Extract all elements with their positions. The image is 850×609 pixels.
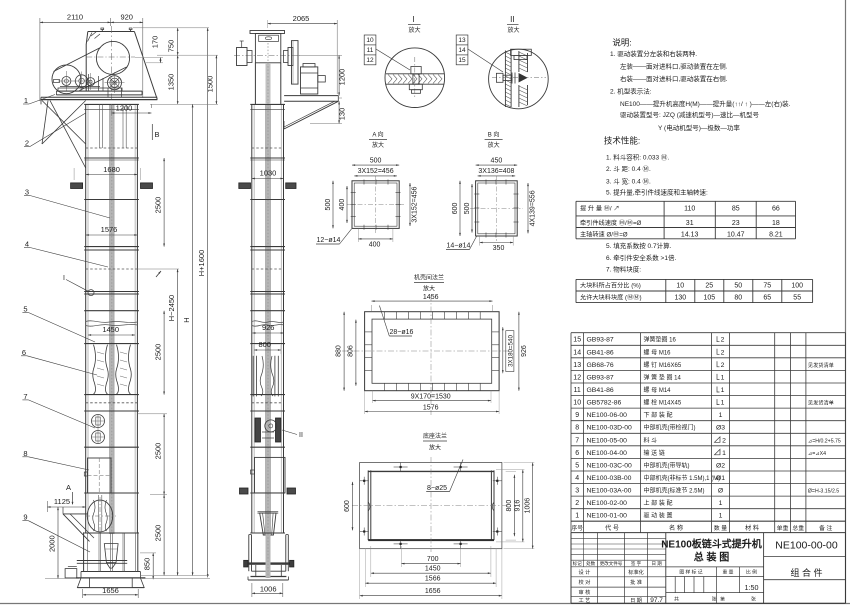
svg-text:1656: 1656 bbox=[102, 586, 119, 595]
svg-text:机壳间法兰: 机壳间法兰 bbox=[414, 274, 444, 282]
svg-text:重 量: 重 量 bbox=[723, 568, 734, 575]
svg-text:共: 共 bbox=[674, 595, 679, 602]
svg-text:校 对: 校 对 bbox=[578, 578, 590, 586]
svg-text:放大: 放大 bbox=[408, 26, 420, 34]
svg-text:1566: 1566 bbox=[425, 576, 441, 583]
svg-text:代 号: 代 号 bbox=[605, 524, 619, 532]
svg-text:1500: 1500 bbox=[206, 76, 215, 93]
svg-text:10: 10 bbox=[676, 283, 684, 290]
svg-text:3. 斗 宽: 0.4 Ⓜ.: 3. 斗 宽: 0.4 Ⓜ. bbox=[606, 177, 651, 186]
svg-text:H−2450: H−2450 bbox=[167, 295, 176, 321]
svg-text:NE100-03B-00: NE100-03B-00 bbox=[587, 475, 632, 482]
svg-text:NE100-03A-00: NE100-03A-00 bbox=[587, 488, 632, 495]
svg-text:驱 动 装 置: 驱 动 装 置 bbox=[644, 512, 673, 520]
svg-text:提 升 量 Ⓜ/ ↗: 提 升 量 Ⓜ/ ↗ bbox=[580, 204, 620, 212]
svg-text:⊿=⊿X4: ⊿=⊿X4 bbox=[808, 451, 826, 457]
svg-text:2: 2 bbox=[721, 349, 725, 356]
svg-text:2500: 2500 bbox=[153, 443, 162, 460]
svg-text:6: 6 bbox=[22, 348, 26, 357]
svg-text:序号: 序号 bbox=[571, 524, 583, 532]
svg-text:25: 25 bbox=[705, 283, 713, 290]
svg-text:Ø1: Ø1 bbox=[716, 475, 725, 482]
svg-text:3X180=540: 3X180=540 bbox=[507, 335, 514, 367]
svg-text:NE100板链斗式提升机: NE100板链斗式提升机 bbox=[661, 538, 762, 551]
svg-text:2500: 2500 bbox=[153, 344, 162, 361]
svg-text:9: 9 bbox=[23, 513, 27, 522]
svg-text:1. 驱动装置分左装和右装两种.: 1. 驱动装置分左装和右装两种. bbox=[610, 49, 697, 58]
svg-text:NE100-02-00: NE100-02-00 bbox=[587, 500, 628, 507]
svg-text:1: 1 bbox=[721, 387, 725, 394]
svg-text:标记: 标记 bbox=[573, 560, 582, 567]
svg-text:技术性能:: 技术性能: bbox=[604, 136, 640, 146]
svg-text:⊿=H/0.2+5.75: ⊿=H/0.2+5.75 bbox=[808, 438, 841, 444]
svg-text:2: 2 bbox=[25, 139, 29, 148]
svg-text:2065: 2065 bbox=[293, 14, 310, 23]
svg-text:4: 4 bbox=[25, 240, 29, 249]
svg-text:3X152=456: 3X152=456 bbox=[412, 186, 419, 222]
svg-text:4X139=556: 4X139=556 bbox=[530, 190, 537, 226]
svg-text:1450: 1450 bbox=[102, 325, 119, 334]
svg-text:名 称: 名 称 bbox=[669, 524, 683, 532]
svg-text:916: 916 bbox=[515, 500, 522, 512]
svg-text:400: 400 bbox=[339, 199, 346, 211]
svg-text:1: 1 bbox=[719, 500, 723, 507]
svg-text:9: 9 bbox=[575, 412, 579, 419]
svg-text:图 样 标 记: 图 样 标 记 bbox=[679, 568, 702, 575]
svg-text:处数: 处数 bbox=[586, 560, 595, 567]
svg-text:100: 100 bbox=[791, 283, 803, 290]
svg-text:10.47: 10.47 bbox=[727, 232, 745, 239]
svg-text:5. 填充系数按 0.7计算.: 5. 填充系数按 0.7计算. bbox=[606, 241, 672, 250]
svg-text:GB41-86: GB41-86 bbox=[587, 387, 614, 394]
svg-text:4: 4 bbox=[575, 475, 579, 482]
svg-text:中部机壳(带检视门): 中部机壳(带检视门) bbox=[644, 424, 696, 432]
svg-text:130: 130 bbox=[338, 108, 347, 121]
svg-text:日 期: 日 期 bbox=[630, 597, 642, 604]
svg-text:放大: 放大 bbox=[507, 26, 519, 34]
svg-text:螺 母 M14: 螺 母 M14 bbox=[644, 386, 672, 394]
svg-text:1006: 1006 bbox=[525, 498, 532, 514]
svg-text:螺 钉 M16X65: 螺 钉 M16X65 bbox=[644, 361, 682, 369]
svg-text:6: 6 bbox=[575, 450, 579, 457]
svg-text:输 送 链: 输 送 链 bbox=[644, 449, 665, 457]
svg-text:1: 1 bbox=[722, 450, 726, 457]
svg-text:500: 500 bbox=[370, 157, 382, 164]
svg-text:比 例: 比 例 bbox=[746, 568, 757, 575]
svg-text:850: 850 bbox=[143, 558, 152, 571]
svg-text:600: 600 bbox=[344, 500, 351, 512]
svg-text:600: 600 bbox=[452, 202, 459, 214]
svg-text:NE100-03C-00: NE100-03C-00 bbox=[587, 462, 633, 469]
svg-text:允许大块料块度 (ⓂⓂ): 允许大块料块度 (ⓂⓂ) bbox=[580, 293, 642, 301]
svg-text:1350: 1350 bbox=[167, 74, 176, 91]
svg-text:NE100-00-00: NE100-00-00 bbox=[775, 540, 838, 552]
svg-text:1200: 1200 bbox=[116, 104, 133, 113]
svg-text:800: 800 bbox=[506, 500, 513, 512]
svg-text:弹 簧 垫 圈 14: 弹 簧 垫 圈 14 bbox=[644, 373, 682, 381]
svg-text:3: 3 bbox=[25, 188, 29, 197]
svg-text:牵引件线速度 Ⓜ/Ⓜ=Ø: 牵引件线速度 Ⓜ/Ⓜ=Ø bbox=[580, 219, 642, 227]
svg-text:9X170=1530: 9X170=1530 bbox=[411, 393, 451, 400]
svg-text:13: 13 bbox=[573, 362, 581, 369]
svg-text:5: 5 bbox=[575, 462, 579, 469]
svg-text:7: 7 bbox=[23, 392, 27, 401]
svg-text:12: 12 bbox=[573, 374, 581, 381]
svg-text:左装——面对进料口,驱动装置在左侧.: 左装——面对进料口,驱动装置在左侧. bbox=[620, 62, 728, 71]
svg-text:NE100-04-00: NE100-04-00 bbox=[587, 450, 628, 457]
svg-text:大块料所占百分比 (%): 大块料所占百分比 (%) bbox=[580, 282, 641, 290]
svg-text:14: 14 bbox=[458, 47, 466, 54]
svg-text:750: 750 bbox=[167, 40, 176, 53]
svg-text:2: 2 bbox=[722, 437, 726, 444]
svg-text:5. 提升量,牵引件线速度和主轴转速:: 5. 提升量,牵引件线速度和主轴转速: bbox=[606, 188, 708, 197]
svg-text:50: 50 bbox=[734, 283, 742, 290]
svg-text:Ø3: Ø3 bbox=[716, 425, 725, 432]
svg-text:14.13: 14.13 bbox=[681, 232, 699, 239]
svg-text:见发货清单: 见发货清单 bbox=[808, 361, 834, 369]
svg-text:1576: 1576 bbox=[423, 404, 439, 411]
svg-text:张: 张 bbox=[712, 595, 717, 602]
svg-text:2. 机型表示法:: 2. 机型表示法: bbox=[610, 87, 652, 96]
svg-text:驱动装置型号: JZQ (减速机型号)—速比—机型号: 驱动装置型号: JZQ (减速机型号)—速比—机型号 bbox=[620, 110, 760, 119]
svg-text:2110: 2110 bbox=[67, 13, 83, 22]
svg-text:66: 66 bbox=[772, 205, 780, 212]
svg-text:500: 500 bbox=[325, 199, 332, 211]
svg-text:14−ø14: 14−ø14 bbox=[447, 243, 471, 250]
svg-text:NE100-06-00: NE100-06-00 bbox=[587, 412, 628, 419]
svg-text:80: 80 bbox=[734, 294, 742, 301]
svg-text:105: 105 bbox=[703, 294, 715, 301]
svg-text:75: 75 bbox=[763, 283, 771, 290]
svg-text:说明:: 说明: bbox=[612, 38, 631, 48]
svg-text:单重: 单重 bbox=[777, 524, 789, 532]
svg-text:110: 110 bbox=[684, 205, 695, 212]
svg-text:3: 3 bbox=[575, 488, 579, 495]
svg-text:1680: 1680 bbox=[103, 165, 120, 174]
svg-text:1: 1 bbox=[719, 412, 723, 419]
svg-text:15: 15 bbox=[573, 337, 581, 344]
svg-text:8−ø25: 8−ø25 bbox=[427, 485, 447, 492]
svg-text:Ø=H-3.15/2.5: Ø=H-3.15/2.5 bbox=[808, 489, 839, 495]
svg-text:1. 料斗容积: 0.033 Ⓜ.: 1. 料斗容积: 0.033 Ⓜ. bbox=[606, 153, 669, 162]
svg-text:806: 806 bbox=[347, 345, 354, 357]
svg-text:放大: 放大 bbox=[372, 141, 384, 149]
svg-text:批 准: 批 准 bbox=[630, 578, 642, 586]
svg-text:1: 1 bbox=[575, 513, 579, 520]
svg-text:审 核: 审 核 bbox=[578, 588, 590, 596]
svg-text:备 注: 备 注 bbox=[819, 524, 832, 532]
svg-text:螺 母 M16: 螺 母 M16 bbox=[644, 348, 672, 356]
svg-text:主轴转速 Ø/Ⓜ=Ø: 主轴转速 Ø/Ⓜ=Ø bbox=[580, 231, 628, 239]
svg-text:总重: 总重 bbox=[792, 524, 804, 532]
svg-text:7. 物料块度:: 7. 物料块度: bbox=[606, 265, 641, 274]
svg-text:14: 14 bbox=[573, 349, 581, 356]
svg-text:2: 2 bbox=[721, 337, 725, 344]
svg-text:400: 400 bbox=[369, 241, 381, 248]
svg-text:926: 926 bbox=[262, 323, 275, 332]
svg-text:NE100——提升机高度H(M)——提升量(↑↑/ ↑ )—: NE100——提升机高度H(M)——提升量(↑↑/ ↑ )——左(右)装. bbox=[620, 99, 791, 108]
svg-text:130: 130 bbox=[674, 294, 686, 301]
svg-text:926: 926 bbox=[521, 345, 528, 357]
svg-text:放大: 放大 bbox=[429, 444, 441, 452]
svg-text:弹簧垫圈 16: 弹簧垫圈 16 bbox=[644, 336, 677, 344]
svg-text:500: 500 bbox=[464, 202, 471, 214]
svg-text:底座法兰: 底座法兰 bbox=[423, 432, 447, 440]
svg-text:2. 斗 距: 0.4 Ⓜ.: 2. 斗 距: 0.4 Ⓜ. bbox=[606, 165, 651, 173]
svg-text:23: 23 bbox=[732, 220, 740, 227]
svg-text:8: 8 bbox=[23, 449, 27, 458]
svg-text:H+1600: H+1600 bbox=[197, 250, 206, 276]
svg-text:5: 5 bbox=[23, 305, 27, 314]
svg-text:签 字: 签 字 bbox=[631, 560, 642, 566]
svg-text:700: 700 bbox=[427, 556, 439, 563]
svg-text:3X136=408: 3X136=408 bbox=[478, 168, 514, 175]
svg-text:Ø: Ø bbox=[718, 488, 724, 495]
svg-text:15: 15 bbox=[458, 57, 466, 64]
svg-text:组 合 件: 组 合 件 bbox=[790, 567, 822, 578]
svg-text:1: 1 bbox=[721, 374, 725, 381]
svg-text:10: 10 bbox=[573, 400, 581, 407]
svg-text:13: 13 bbox=[458, 37, 466, 44]
svg-text:材 料: 材 料 bbox=[745, 524, 759, 532]
svg-text:I: I bbox=[63, 275, 65, 282]
svg-text:3X152=456: 3X152=456 bbox=[358, 168, 394, 175]
svg-text:8: 8 bbox=[575, 425, 579, 432]
svg-text:11: 11 bbox=[574, 387, 581, 394]
svg-text:97.7: 97.7 bbox=[650, 597, 663, 604]
svg-text:B: B bbox=[154, 130, 159, 139]
svg-text:B 向: B 向 bbox=[488, 131, 500, 139]
svg-text:7: 7 bbox=[575, 437, 579, 444]
svg-text:1656: 1656 bbox=[425, 588, 441, 595]
svg-text:12: 12 bbox=[366, 57, 374, 64]
svg-text:1450: 1450 bbox=[425, 566, 441, 573]
svg-text:张: 张 bbox=[751, 595, 756, 602]
svg-text:350: 350 bbox=[493, 245, 505, 252]
svg-text:GB68-76: GB68-76 bbox=[587, 362, 614, 369]
svg-text:1006: 1006 bbox=[260, 584, 277, 593]
svg-text:6. 牵引件安全系数 >1倍.: 6. 牵引件安全系数 >1倍. bbox=[606, 253, 676, 262]
svg-text:中部机壳(带导轨): 中部机壳(带导轨) bbox=[644, 461, 690, 469]
svg-text:800: 800 bbox=[258, 340, 271, 349]
svg-text:设 计: 设 计 bbox=[578, 568, 590, 576]
svg-text:28−ø16: 28−ø16 bbox=[390, 329, 414, 336]
svg-text:NE100-05-00: NE100-05-00 bbox=[587, 437, 628, 444]
svg-text:8.21: 8.21 bbox=[769, 232, 783, 239]
svg-text:放大: 放大 bbox=[423, 285, 435, 293]
svg-text:55: 55 bbox=[793, 294, 801, 301]
svg-text:18: 18 bbox=[772, 220, 780, 227]
svg-text:右装——面对进料口,驱动装置在右侧.: 右装——面对进料口,驱动装置在右侧. bbox=[620, 74, 728, 83]
svg-text:II: II bbox=[510, 15, 514, 24]
svg-text:10: 10 bbox=[366, 37, 374, 44]
svg-text:上 部 装 配: 上 部 装 配 bbox=[644, 499, 673, 507]
svg-text:GB5782-86: GB5782-86 bbox=[587, 400, 622, 407]
svg-text:1: 1 bbox=[24, 96, 28, 105]
svg-text:31: 31 bbox=[686, 220, 694, 227]
svg-text:1125: 1125 bbox=[54, 497, 70, 506]
svg-text:GB93-87: GB93-87 bbox=[587, 337, 614, 344]
svg-text:工 艺: 工 艺 bbox=[578, 597, 590, 604]
svg-text:中部机壳(非标节 1.5M),1 (M): 中部机壳(非标节 1.5M),1 (M) bbox=[644, 474, 721, 482]
svg-text:11: 11 bbox=[367, 47, 374, 54]
svg-text:2500: 2500 bbox=[153, 197, 162, 214]
svg-text:1: 1 bbox=[721, 400, 725, 407]
svg-text:放大: 放大 bbox=[488, 141, 500, 149]
svg-text:NE100-01-00: NE100-01-00 bbox=[587, 513, 628, 520]
svg-text:1: 1 bbox=[719, 513, 723, 520]
svg-text:880: 880 bbox=[336, 345, 343, 357]
svg-text:920: 920 bbox=[120, 13, 133, 22]
svg-text:85: 85 bbox=[732, 205, 740, 212]
svg-text:螺 栓 M14X45: 螺 栓 M14X45 bbox=[644, 399, 682, 407]
svg-text:1030: 1030 bbox=[260, 168, 277, 177]
svg-text:65: 65 bbox=[763, 294, 771, 301]
svg-text:1200: 1200 bbox=[338, 69, 347, 86]
svg-text:1456: 1456 bbox=[423, 294, 439, 301]
svg-text:GB93-87: GB93-87 bbox=[587, 374, 614, 381]
svg-text:料 斗: 料 斗 bbox=[644, 436, 658, 444]
svg-text:总 装 图: 总 装 图 bbox=[694, 551, 730, 564]
svg-text:标准化: 标准化 bbox=[628, 568, 644, 576]
svg-text:见发货清单: 见发货清单 bbox=[808, 399, 834, 407]
svg-text:第: 第 bbox=[720, 595, 725, 602]
svg-text:A: A bbox=[66, 483, 71, 492]
svg-text:1576: 1576 bbox=[101, 225, 118, 234]
svg-text:A 向: A 向 bbox=[372, 131, 383, 139]
svg-text:12−ø14: 12−ø14 bbox=[317, 237, 341, 244]
svg-text:下 部 装 配: 下 部 装 配 bbox=[644, 411, 673, 419]
svg-text:H: H bbox=[182, 317, 191, 322]
svg-text:更改文件号: 更改文件号 bbox=[600, 560, 623, 567]
svg-text:2000: 2000 bbox=[48, 535, 57, 552]
svg-text:I: I bbox=[412, 15, 414, 24]
svg-text:170: 170 bbox=[151, 36, 160, 49]
svg-text:450: 450 bbox=[491, 157, 503, 164]
svg-text:数 量: 数 量 bbox=[714, 524, 727, 532]
svg-text:2: 2 bbox=[575, 500, 579, 507]
svg-text:Y (电动机型号)—极数—功率: Y (电动机型号)—极数—功率 bbox=[658, 123, 740, 132]
svg-text:1:50: 1:50 bbox=[745, 583, 759, 592]
svg-text:中部机壳(标准节 2.5M): 中部机壳(标准节 2.5M) bbox=[644, 487, 705, 495]
svg-text:2500: 2500 bbox=[153, 525, 162, 542]
svg-text:2: 2 bbox=[721, 362, 725, 369]
svg-text:Ø2: Ø2 bbox=[716, 462, 725, 469]
svg-text:GB41-86: GB41-86 bbox=[587, 349, 614, 356]
svg-text:NE100-03D-00: NE100-03D-00 bbox=[587, 425, 633, 432]
svg-text:II: II bbox=[299, 432, 303, 439]
